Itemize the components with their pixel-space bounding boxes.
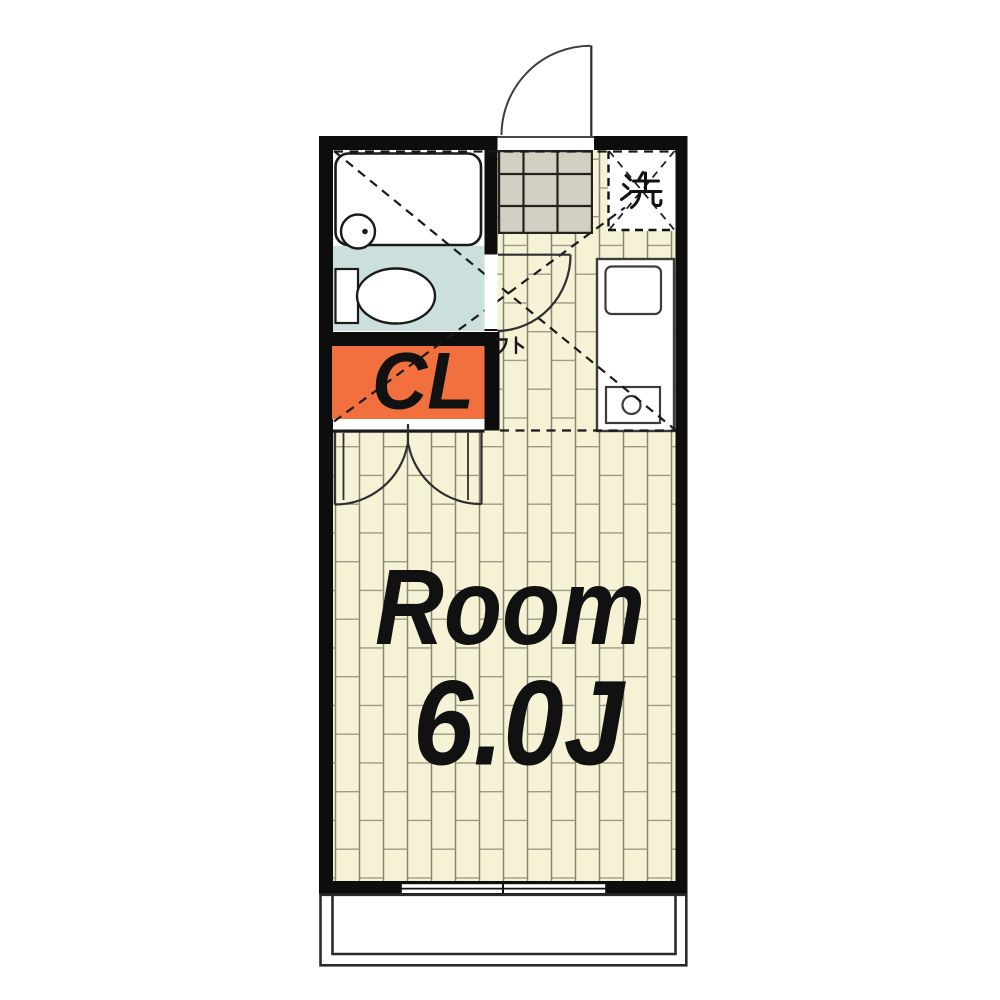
svg-text:CL: CL	[372, 337, 474, 427]
svg-text:6.0J: 6.0J	[413, 655, 626, 791]
svg-text:Room: Room	[375, 546, 645, 667]
